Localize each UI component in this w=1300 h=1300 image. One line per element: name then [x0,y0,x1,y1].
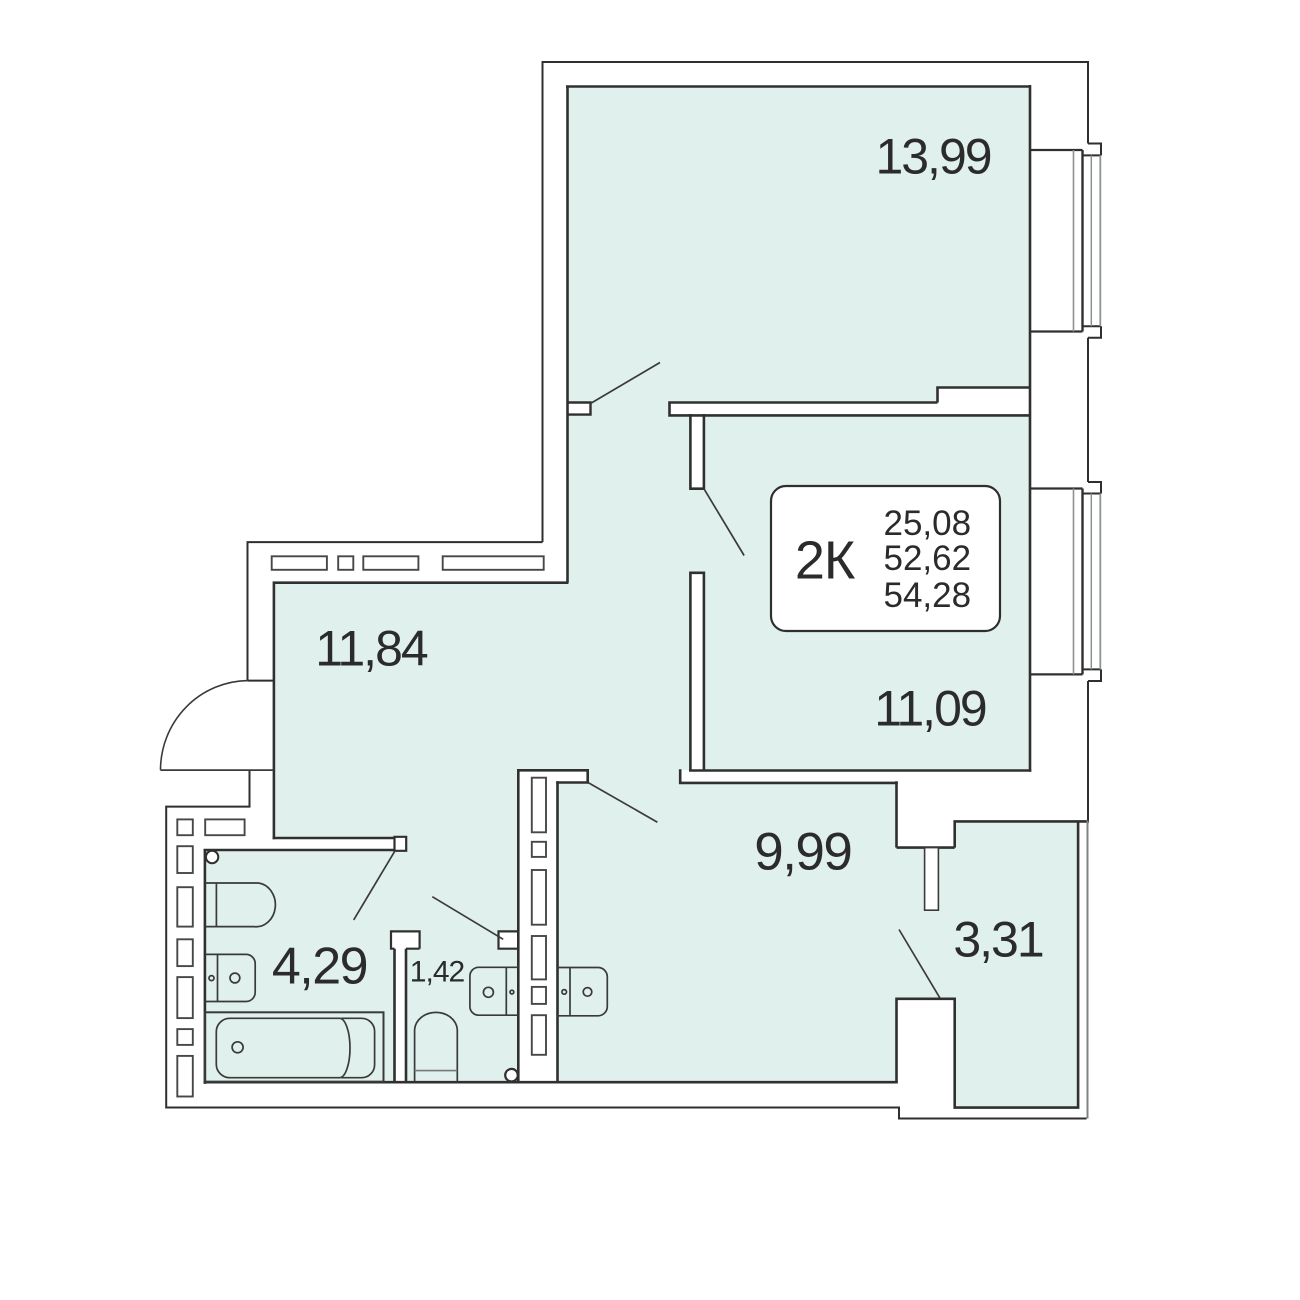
svg-text:11,84: 11,84 [315,621,428,677]
svg-text:3,31: 3,31 [953,912,1043,968]
svg-text:2К: 2К [795,531,856,591]
svg-text:1,42: 1,42 [410,955,465,988]
svg-text:11,09: 11,09 [874,680,986,736]
svg-text:52,62: 52,62 [884,539,972,578]
svg-text:4,29: 4,29 [272,937,367,995]
svg-text:54,28: 54,28 [884,576,972,615]
svg-text:25,08: 25,08 [884,504,972,543]
svg-text:9,99: 9,99 [754,823,851,882]
svg-text:13,99: 13,99 [875,128,990,184]
